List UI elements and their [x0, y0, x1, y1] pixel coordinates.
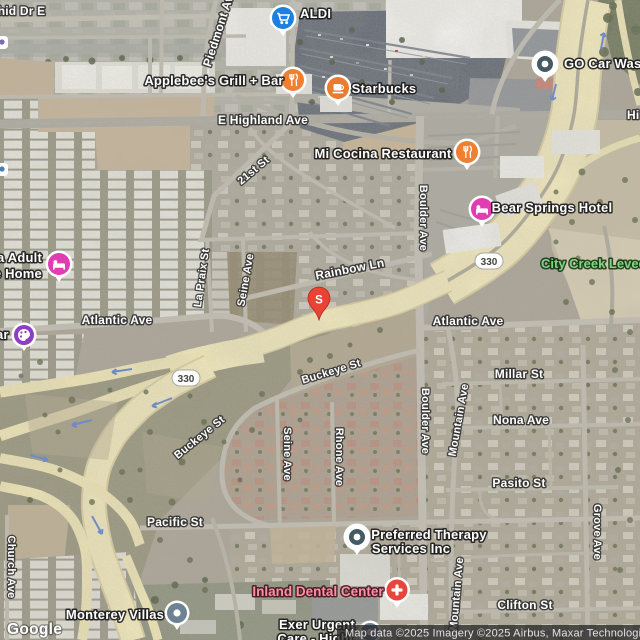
svg-text:Map data ©2025 Imagery ©2025: Map data ©2025 Imagery ©2025 Airbus, Max… — [345, 628, 640, 640]
svg-text:330: 330 — [178, 374, 195, 385]
svg-text:ar: ar — [0, 327, 9, 342]
svg-text:Rhone Ave: Rhone Ave — [333, 428, 345, 486]
svg-text:Google: Google — [7, 621, 62, 638]
svg-text:E Highland Ave: E Highland Ave — [218, 113, 308, 127]
svg-text:Starbucks: Starbucks — [352, 81, 417, 96]
svg-text:Services Inc: Services Inc — [372, 541, 450, 556]
svg-text:Church Ave: Church Ave — [5, 536, 17, 599]
svg-text:Clifton St: Clifton St — [497, 598, 552, 612]
svg-text:Mi Cocina Restaurant: Mi Cocina Restaurant — [315, 146, 452, 161]
svg-text:Boulder Ave: Boulder Ave — [417, 185, 429, 251]
svg-text:Pasito St: Pasito St — [492, 476, 545, 490]
svg-text:Inland Dental Center: Inland Dental Center — [252, 584, 384, 599]
svg-text:GO Car Wash: GO Car Wash — [564, 56, 640, 71]
svg-text:S: S — [315, 295, 323, 307]
svg-text:City Creek Levee: City Creek Levee — [541, 256, 640, 271]
svg-text:Pacific St: Pacific St — [147, 515, 203, 529]
svg-text:Nona Ave: Nona Ave — [493, 413, 549, 427]
svg-text:ALDI: ALDI — [300, 6, 331, 21]
svg-text:rchid Dr E: rchid Dr E — [0, 4, 45, 18]
svg-text:Millar St: Millar St — [495, 367, 543, 381]
svg-text:Preferred Therapy: Preferred Therapy — [371, 527, 487, 542]
svg-text:a Adult: a Adult — [0, 250, 42, 265]
svg-text:Hi: Hi — [627, 108, 639, 122]
svg-text:Monterey Villas: Monterey Villas — [66, 607, 164, 622]
svg-text:Atlantic Ave: Atlantic Ave — [433, 314, 504, 328]
svg-text:Boulder Ave: Boulder Ave — [419, 388, 431, 454]
svg-text:330: 330 — [481, 257, 498, 268]
svg-text:Applebee's Grill + Bar: Applebee's Grill + Bar — [144, 73, 283, 88]
svg-text:Seine Ave: Seine Ave — [281, 427, 293, 481]
svg-text:Grove Ave: Grove Ave — [591, 504, 603, 560]
svg-text:Atlantic Ave: Atlantic Ave — [82, 313, 153, 327]
svg-text:Bear Springs Hotel: Bear Springs Hotel — [492, 200, 613, 215]
svg-text:e Home: e Home — [0, 266, 42, 281]
